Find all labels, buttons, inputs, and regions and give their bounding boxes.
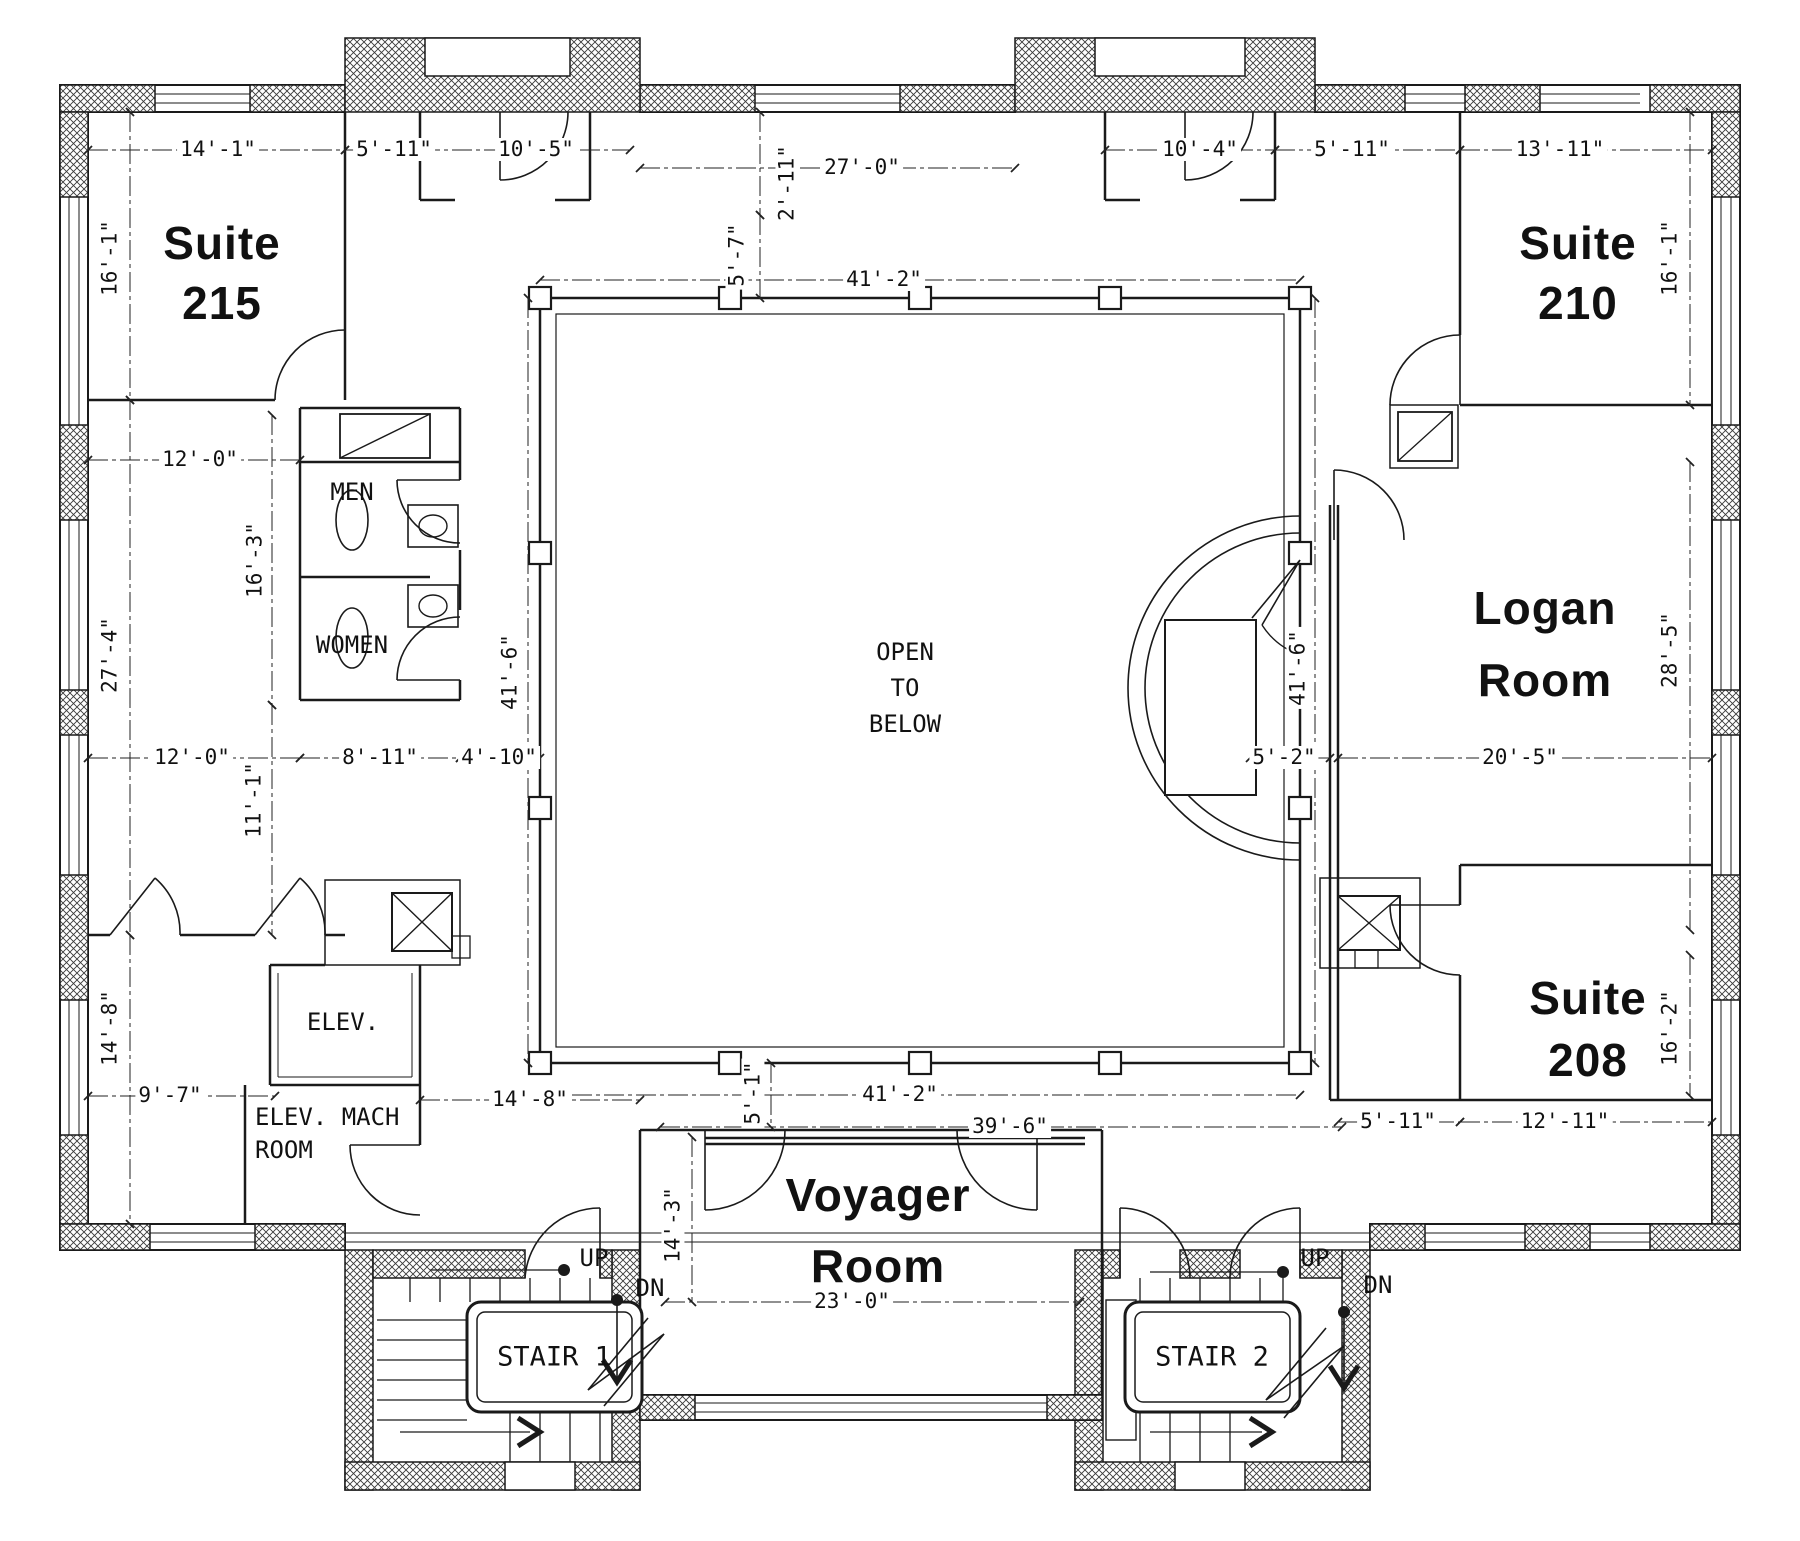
dim-41-6-right: 41'-6" xyxy=(1286,627,1309,709)
voyager-bottom-wall xyxy=(640,1395,1102,1420)
up-marker xyxy=(1277,1266,1289,1278)
dim-39-6: 39'-6" xyxy=(969,1115,1051,1138)
room-label-suite-215-2: 215 xyxy=(182,276,262,330)
dim-20-5: 20'-5" xyxy=(1479,746,1561,769)
dim-27-0: 27'-0" xyxy=(821,156,903,179)
atrium xyxy=(529,287,1311,1074)
dim-14-3: 14'-3" xyxy=(661,1184,684,1266)
dim-10-5: 10'-5" xyxy=(495,138,577,161)
men-room-label: MEN xyxy=(330,478,373,506)
dim-5-11-b: 5'-11" xyxy=(1311,138,1393,161)
open-to-below-label-1: OPEN xyxy=(876,638,934,666)
dim-16-2: 16'-2" xyxy=(1658,987,1681,1069)
room-label-suite-210-1: Suite xyxy=(1519,216,1636,270)
elev-mach-room-label-1: ELEV. MACH xyxy=(255,1103,400,1131)
dim-12-0-b: 12'-0" xyxy=(151,746,233,769)
sink-icon xyxy=(408,505,458,547)
dim-16-3: 16'-3" xyxy=(243,519,266,601)
dim-12-11: 12'-11" xyxy=(1518,1110,1613,1133)
dn-label-stair2: DN xyxy=(1364,1271,1393,1299)
women-room-label: WOMEN xyxy=(316,631,388,659)
dim-2-11: 2'-11" xyxy=(775,142,798,224)
dim-11-1: 11'-1" xyxy=(242,759,265,841)
floor-plan: Suite 215 Suite 210 Logan Room Suite 208… xyxy=(0,0,1800,1541)
room-label-logan-2: Room xyxy=(1478,653,1612,707)
dim-41-2-top: 41'-2" xyxy=(843,268,925,291)
open-to-below-label-3: BELOW xyxy=(869,710,941,738)
dim-14-8-bottom: 14'-8" xyxy=(489,1088,571,1111)
dim-27-4: 27'-4" xyxy=(98,614,121,696)
dim-8-11: 8'-11" xyxy=(339,746,421,769)
dim-5-1: 5'-1" xyxy=(741,1058,764,1127)
stair2-label: STAIR 2 xyxy=(1155,1342,1269,1373)
dim-14-1: 14'-1" xyxy=(177,138,259,161)
up-marker xyxy=(558,1264,570,1276)
dim-14-8-left: 14'-8" xyxy=(98,987,121,1069)
room-label-suite-215-1: Suite xyxy=(163,216,280,270)
atrium-arc-feature xyxy=(1128,516,1300,860)
dim-12-0-a: 12'-0" xyxy=(159,448,241,471)
room-label-voyager-2: Room xyxy=(811,1239,945,1293)
dn-label-stair1: DN xyxy=(636,1274,665,1302)
dim-5-2: 5'-2" xyxy=(1249,746,1318,769)
elev-mach-room-label-2: ROOM xyxy=(255,1136,313,1164)
dim-28-5: 28'-5" xyxy=(1658,609,1681,691)
elev-room-label: ELEV. xyxy=(307,1008,379,1036)
dim-5-11-c: 5'-11" xyxy=(1357,1110,1439,1133)
dim-4-10: 4'-10" xyxy=(458,746,540,769)
room-label-suite-208-2: 208 xyxy=(1548,1033,1628,1087)
open-to-below-label-2: TO xyxy=(891,674,920,702)
dim-16-1-right: 16'-1" xyxy=(1658,217,1681,299)
dim-16-1-left: 16'-1" xyxy=(98,217,121,299)
dim-9-7: 9'-7" xyxy=(135,1084,204,1107)
room-label-suite-208-1: Suite xyxy=(1529,971,1646,1025)
dim-13-11: 13'-11" xyxy=(1513,138,1608,161)
dim-5-7: 5'-7" xyxy=(725,220,748,289)
dim-5-11-a: 5'-11" xyxy=(353,138,435,161)
dim-10-4: 10'-4" xyxy=(1159,138,1241,161)
fixtures xyxy=(278,405,1458,1077)
up-label-stair2: UP xyxy=(1301,1244,1330,1272)
dim-41-2-bottom: 41'-2" xyxy=(859,1083,941,1106)
dim-41-6-left: 41'-6" xyxy=(498,631,521,713)
room-label-voyager-1: Voyager xyxy=(785,1168,970,1222)
sink-icon xyxy=(408,585,458,627)
up-label-stair1: UP xyxy=(580,1244,609,1272)
room-label-suite-210-2: 210 xyxy=(1538,276,1618,330)
room-label-logan-1: Logan xyxy=(1474,581,1617,635)
dim-23-0: 23'-0" xyxy=(811,1290,893,1313)
stair1-label: STAIR 1 xyxy=(497,1342,611,1373)
